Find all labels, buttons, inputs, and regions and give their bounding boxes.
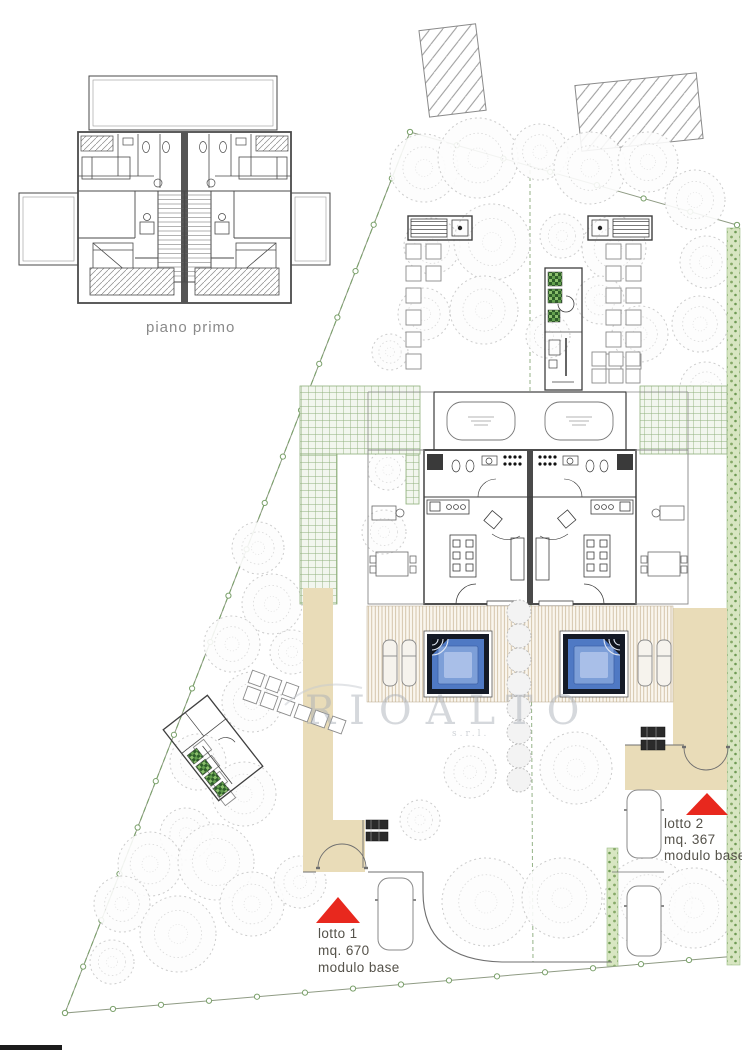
stepping-stone xyxy=(406,266,421,281)
tree xyxy=(522,858,602,938)
boundary-marker xyxy=(350,986,355,991)
neighbor-building-1 xyxy=(419,24,486,117)
boundary-marker xyxy=(686,957,691,962)
boundary-marker xyxy=(190,686,195,691)
house-party-wall xyxy=(527,450,533,604)
boundary-marker xyxy=(110,1006,115,1011)
boundary-marker xyxy=(254,994,259,999)
hedge-lot2 xyxy=(607,848,618,966)
tree xyxy=(368,450,408,490)
tree xyxy=(442,858,530,946)
boundary-marker xyxy=(641,196,646,201)
stepping-stone xyxy=(626,244,641,259)
site-plan-drawing: piano primo xyxy=(0,0,742,1050)
side-wing-right xyxy=(636,450,688,604)
stepping-stone xyxy=(426,266,441,281)
tree xyxy=(90,940,134,984)
stepping-stone xyxy=(406,244,421,259)
tree xyxy=(618,132,678,192)
boundary-marker xyxy=(158,1002,163,1007)
boundary-marker xyxy=(335,315,340,320)
stepping-stone xyxy=(626,310,641,325)
stepping-stone xyxy=(626,266,641,281)
car-lot2-a xyxy=(627,790,661,858)
boundary-marker xyxy=(262,500,267,505)
lot2-title: lotto 2 xyxy=(664,816,704,831)
bush xyxy=(507,744,531,768)
trellis-left-block xyxy=(300,386,420,454)
watermark: RIOALTO s.r.l. xyxy=(285,684,593,739)
tree xyxy=(444,746,496,798)
boundary-marker xyxy=(494,974,499,979)
boundary-marker xyxy=(446,978,451,983)
boundary-marker xyxy=(135,825,140,830)
site-plan-page: piano primo xyxy=(0,0,742,1050)
boundary-marker xyxy=(398,982,403,987)
tree xyxy=(400,800,440,840)
lot2-module: modulo base xyxy=(664,848,742,863)
first-floor-plan xyxy=(19,76,330,303)
tree xyxy=(680,236,732,288)
car-lot2-b xyxy=(627,886,661,956)
trellis-areas xyxy=(300,386,727,604)
floor-plan-caption: piano primo xyxy=(146,319,235,336)
boundary-marker xyxy=(171,732,176,737)
lot1-module: modulo base xyxy=(318,960,400,975)
boundary-marker xyxy=(206,998,211,1003)
stepping-stone xyxy=(626,288,641,303)
stepping-stone xyxy=(626,369,640,383)
watermark-suffix: s.r.l. xyxy=(452,729,489,739)
stepping-stone xyxy=(406,288,421,303)
boundary-marker xyxy=(638,962,643,967)
tree xyxy=(665,170,725,230)
boundary-marker xyxy=(153,779,158,784)
tree xyxy=(672,296,728,352)
tree xyxy=(438,118,518,198)
stepping-stone xyxy=(406,332,421,347)
tree xyxy=(540,214,584,258)
bush xyxy=(507,768,531,792)
stepping-stone xyxy=(606,288,621,303)
balcony-right xyxy=(291,193,330,265)
boundary-marker xyxy=(226,593,231,598)
tree xyxy=(140,896,216,972)
tree xyxy=(654,868,734,948)
stepping-stone xyxy=(606,332,621,347)
boundary-marker xyxy=(371,222,376,227)
stepping-stone xyxy=(626,332,641,347)
stepping-stone xyxy=(592,369,606,383)
boundary-marker xyxy=(734,222,739,227)
stepping-stone xyxy=(606,310,621,325)
boundary-marker xyxy=(62,1010,67,1015)
trellis-right-block xyxy=(640,386,727,454)
stepping-stone xyxy=(606,266,621,281)
boundary-marker xyxy=(590,966,595,971)
terrace-top xyxy=(89,76,277,130)
lot1-title: lotto 1 xyxy=(318,926,358,941)
stepping-stone xyxy=(626,352,640,366)
tree xyxy=(450,276,518,344)
bush xyxy=(507,600,531,624)
tree xyxy=(372,334,408,370)
boundary-marker xyxy=(353,269,358,274)
stepping-stone xyxy=(426,244,441,259)
scan-edge-artifact xyxy=(0,1045,62,1050)
boundary-marker xyxy=(81,964,86,969)
stepping-stone xyxy=(606,244,621,259)
stepping-stone xyxy=(406,310,421,325)
lot1-marker-icon xyxy=(316,897,360,923)
lot2-area: mq. 367 xyxy=(664,832,716,847)
bush xyxy=(507,648,531,672)
tree xyxy=(232,522,284,574)
trellis-left-strip xyxy=(300,454,337,604)
car-lot1 xyxy=(378,878,413,950)
boundary-marker xyxy=(317,361,322,366)
bush xyxy=(507,624,531,648)
boundary-marker xyxy=(542,970,547,975)
boundary-marker xyxy=(280,454,285,459)
tree xyxy=(540,732,612,804)
lot1-area: mq. 670 xyxy=(318,943,370,958)
tree xyxy=(554,132,626,204)
stepping-stone xyxy=(609,352,623,366)
tree xyxy=(204,616,260,672)
boundary-marker xyxy=(302,990,307,995)
lot2-marker-icon xyxy=(686,793,728,815)
stepping-stone xyxy=(609,369,623,383)
stepping-stone xyxy=(592,352,606,366)
boundary-marker xyxy=(407,129,412,134)
stepping-stone xyxy=(406,354,421,369)
watermark-text: RIOALTO xyxy=(305,688,593,734)
balcony-left xyxy=(19,193,78,265)
